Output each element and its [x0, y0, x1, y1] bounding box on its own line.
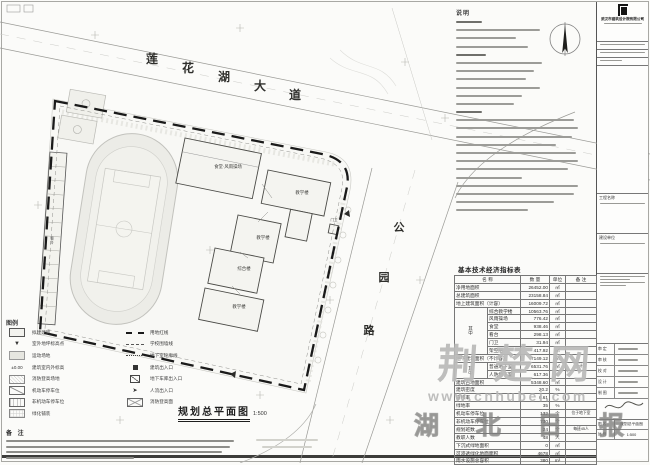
legend-left-column: 拟建建筑▼室外地坪标高点运动场地±0.00建筑室内外标高消防登高场地机动车停车位…: [6, 327, 64, 420]
garage-symbol: [130, 375, 140, 383]
table-name-cell: 雨水设施总容积: [455, 457, 521, 465]
note-line: [456, 185, 578, 187]
table-remark-cell: [566, 299, 597, 307]
bldg-legend-icon: [6, 328, 28, 337]
note-line: [456, 152, 576, 154]
legend-item: 建筑出入口: [124, 362, 182, 374]
note-line: [456, 168, 568, 170]
svg-text:花: 花: [182, 60, 194, 75]
note-line: [456, 103, 514, 105]
table-unit-cell: ㎡: [550, 299, 566, 307]
level-legend-icon: ±0.00: [6, 365, 28, 370]
table-remark-cell: [566, 315, 597, 323]
watermark-url: www.cnhubei.com: [428, 388, 588, 404]
table-header-cell: 数 量: [521, 276, 550, 284]
legend-item-label: 地下车库出入口: [150, 376, 182, 382]
table-name-cell: 可渗透绿化地面面积: [455, 449, 521, 457]
remark-line: [6, 440, 234, 442]
parking-legend-icon: [6, 386, 28, 395]
signature-value-line: [618, 359, 638, 361]
legend-item: 运动场地: [6, 350, 64, 362]
table-name-cell: 地上建筑面积（计容）: [455, 299, 521, 307]
field-symbol: [9, 351, 25, 360]
table-qty-cell: 4678: [521, 449, 550, 457]
legend-item: 消防登高场地: [6, 373, 64, 385]
faint-caption-line: [256, 439, 318, 441]
table-qty-cell: 776.42: [521, 315, 550, 323]
table-row: 可渗透绿化地面面积4678㎡: [455, 449, 597, 457]
drawing-sheet: { "sheet": { "plan_title": "规划总平面图", "pl…: [0, 0, 650, 463]
titleblock-row: [597, 42, 648, 50]
svg-text:路: 路: [364, 323, 376, 337]
table-remark-cell: [566, 283, 597, 291]
table-row: 总建筑面积23158.84㎡: [455, 291, 597, 299]
note-line: [456, 119, 574, 121]
legend-item-label: 人流出入口: [150, 388, 173, 394]
table-row: 下沉式绿地面积0㎡: [455, 441, 597, 449]
company-subtitle-line: [604, 23, 642, 25]
plan-title: 规划总平面图: [178, 403, 250, 422]
signature-value-line: [618, 348, 638, 350]
watermark-brand: 荆楚网: [436, 332, 608, 390]
legend-item-label: 绿化铺装: [32, 411, 50, 417]
flow-legend-icon: ➤: [124, 388, 146, 394]
text-line: [600, 279, 630, 281]
entry-symbol: [133, 365, 138, 370]
table-qty-cell: 380: [521, 457, 550, 465]
basement-legend-icon: [124, 355, 146, 356]
spot-symbol: ▼: [14, 341, 20, 347]
project-name-label: 工程名称: [597, 194, 648, 201]
text-line: [600, 44, 645, 46]
legend-item: 地下室轮廓线: [124, 350, 182, 362]
notes-text-lines: [456, 21, 588, 211]
paving-symbol: [9, 409, 25, 418]
signature-value-line: [618, 370, 638, 372]
table-unit-cell: ㎡: [550, 449, 566, 457]
remarks-text-lines: [6, 440, 256, 458]
titleblock-client-cell: 建设单位: [597, 234, 648, 274]
legend-item-label: 非机动车停车位: [32, 399, 64, 405]
redline-symbol: [126, 332, 144, 334]
field-legend-icon: [6, 351, 28, 360]
table-name-cell: 下沉式绿地面积: [455, 441, 521, 449]
svg-text:莲: 莲: [146, 51, 158, 66]
remark-line: [6, 457, 134, 459]
legend-item-label: 学校围墙线: [150, 341, 173, 347]
spot-legend-icon: ▼: [6, 341, 28, 347]
table-qty-cell: 16009.72: [521, 299, 550, 307]
text-line: [600, 243, 645, 245]
table-header-cell: 名 称: [455, 276, 521, 284]
label-teaching-mid: 教学楼: [256, 234, 270, 241]
legend-item-label: 建筑出入口: [150, 365, 173, 371]
svg-text:公: 公: [394, 221, 405, 234]
remarks-panel: 备 注: [6, 428, 256, 459]
legend-item: 拟建建筑: [6, 327, 64, 339]
flow-symbol: ➤: [132, 388, 137, 394]
fire-legend-icon: [124, 398, 146, 407]
titleblock: 武汉市建筑设计院有限公司 工程名称 建设单位 审 定审 核校 对设 计制 图 图…: [597, 2, 648, 459]
legend-item: 绿化铺装: [6, 408, 64, 420]
bike-symbol: [9, 398, 25, 407]
contour-lines: [330, 50, 396, 94]
table-qty-cell: 10563.76: [521, 307, 550, 315]
svg-text:大: 大: [254, 78, 266, 93]
legend-item: 用地红线: [124, 327, 182, 339]
table-unit-cell: ㎡: [550, 291, 566, 299]
table-remark-cell: [566, 291, 597, 299]
note-line: [456, 78, 526, 80]
legend-item-label: 拟建建筑: [32, 330, 50, 336]
table-name-cell: 综合教学楼: [488, 307, 521, 315]
note-line: [456, 21, 482, 23]
plan-title-block: 规划总平面图1:500: [178, 402, 267, 422]
hatch-symbol: [9, 375, 25, 384]
note-line: [456, 46, 528, 48]
legend-item: ➤人流出入口: [124, 385, 182, 397]
titleblock-logo-section: 武汉市建筑设计院有限公司: [597, 2, 648, 42]
note-line: [456, 54, 486, 56]
table-name-cell: 风雨操场: [488, 315, 521, 323]
table-unit-cell: ㎡: [550, 315, 566, 323]
remark-line: [6, 446, 230, 448]
text-line: [600, 282, 645, 284]
corner-marks: [7, 5, 33, 12]
note-line: [456, 87, 540, 89]
titleblock-project-cell: 工程名称: [597, 194, 648, 234]
table-name-cell: 总建筑面积: [455, 291, 521, 299]
table-unit-cell: m³: [550, 457, 566, 465]
entry-legend-icon: [124, 365, 146, 370]
text-line: [600, 52, 645, 54]
legend-item: ±0.00建筑室内外标高: [6, 362, 64, 374]
client-name-label: 建设单位: [597, 234, 648, 241]
level-symbol: ±0.00: [11, 365, 22, 370]
note-line: [456, 37, 516, 39]
table-header-cell: 单位: [550, 276, 566, 284]
legend-right-column: 用地红线学校围墙线地下室轮廓线建筑出入口地下车库出入口➤人流出入口消防登高面: [124, 327, 182, 408]
parking-symbol: [9, 386, 25, 395]
svg-text:道: 道: [289, 87, 301, 102]
table-row: 净用地面积26452.00㎡: [455, 283, 597, 291]
table-name-cell: 食堂: [488, 323, 521, 331]
table-header-cell: 备 注: [566, 276, 597, 284]
note-line: [456, 193, 574, 195]
notes-title: 说明: [456, 8, 588, 17]
table-row: 其中综合教学楼10563.76㎡: [455, 307, 597, 315]
titleblock-row: [597, 50, 648, 58]
table-unit-cell: ㎡: [550, 283, 566, 291]
legend-item: 地下车库出入口: [124, 373, 182, 385]
note-line: [456, 201, 554, 203]
legend-item: ▼室外地坪标高点: [6, 339, 64, 351]
legend-item-label: 地下室轮廓线: [150, 353, 178, 359]
road-name-lianhuahu-avenue: 莲 花 湖 大 道: [146, 51, 301, 102]
legend-item-label: 室外地坪标高点: [32, 341, 64, 347]
text-line: [600, 60, 622, 62]
text-line: [600, 203, 645, 205]
faint-caption-line: [262, 446, 312, 448]
plan-scale: 1:500: [253, 411, 267, 417]
company-name: 武汉市建筑设计院有限公司: [597, 16, 648, 22]
table-row: 雨水设施总容积380m³: [455, 457, 597, 465]
label-canteen-gym: 食堂·风雨操场: [214, 163, 242, 170]
table-unit-cell: ㎡: [550, 323, 566, 331]
table-remark-cell: [566, 307, 597, 315]
legend-item-label: 建筑室内外标高: [32, 365, 64, 371]
note-line: [456, 111, 482, 113]
table-qty-cell: 0: [521, 441, 550, 449]
text-line: [600, 276, 645, 278]
note-line: [456, 209, 528, 211]
legend-title: 图例: [6, 318, 256, 327]
legend-item: 非机动车停车位: [6, 397, 64, 409]
bldg-symbol: [9, 328, 25, 337]
legend-panel: 图例 拟建建筑▼室外地坪标高点运动场地±0.00建筑室内外标高消防登高场地机动车…: [6, 318, 256, 327]
titleblock-empty-cell: [597, 66, 648, 194]
svg-text:园: 园: [379, 271, 390, 284]
fire-symbol: [127, 398, 143, 407]
table-qty-cell: 23158.84: [521, 291, 550, 299]
road-name-gongyuan-road: 公 园 路: [364, 221, 405, 337]
svg-text:湖: 湖: [218, 69, 230, 84]
indicators-table-title: 基本技术经济指标表: [458, 264, 586, 274]
table-remark-cell: [566, 457, 597, 465]
signature-value-line: [618, 381, 638, 383]
table-header-row: 名 称数 量单位备 注: [455, 276, 597, 284]
table-remark-cell: [566, 323, 597, 331]
note-line: [456, 144, 556, 146]
hatch-legend-icon: [6, 375, 28, 384]
bike-legend-icon: [6, 398, 28, 407]
legend-item-label: 用地红线: [150, 330, 168, 336]
note-line: [456, 127, 578, 129]
legend-item-label: 机动车停车位: [32, 388, 60, 394]
table-unit-cell: ㎡: [550, 441, 566, 449]
titleblock-row: [597, 58, 648, 66]
table-qty-cell: 938.46: [521, 323, 550, 331]
table-remark-cell: [566, 441, 597, 449]
redline-legend-icon: [124, 332, 146, 334]
legend-item-label: 消防登高面: [150, 399, 173, 405]
garage-legend-icon: [124, 375, 146, 383]
note-line: [456, 177, 522, 179]
wall-symbol: [126, 344, 144, 345]
table-qty-cell: 26452.00: [521, 283, 550, 291]
note-line: [456, 62, 542, 64]
stands-label: 看台: [50, 235, 56, 245]
note-line: [456, 70, 534, 72]
legend-item-label: 运动场地: [32, 353, 50, 359]
legend-item: 机动车停车位: [6, 385, 64, 397]
watermark-site-name: 湖 北 日 报 网: [414, 406, 650, 442]
label-teaching-north: 教学楼: [295, 189, 309, 196]
note-line: [456, 29, 540, 31]
notes-panel: 说明: [456, 8, 588, 260]
legend-item-label: 消防登高场地: [32, 376, 60, 382]
wall-legend-icon: [124, 344, 146, 345]
label-teaching-south: 教学楼: [232, 303, 246, 310]
text-line: [600, 285, 626, 287]
legend-item: 学校围墙线: [124, 339, 182, 351]
table-row: 地上建筑面积（计容）16009.72㎡: [455, 299, 597, 307]
label-gatehouse: 门卫: [331, 217, 339, 222]
note-line: [456, 160, 578, 162]
legend-item: 消防登高面: [124, 397, 182, 409]
table-unit-cell: ㎡: [550, 307, 566, 315]
remark-line: [6, 451, 222, 453]
basement-symbol: [126, 355, 144, 356]
note-line: [456, 95, 522, 97]
note-line: [456, 136, 572, 138]
remarks-title: 备 注: [6, 428, 256, 437]
paving-legend-icon: [6, 409, 28, 418]
table-name-cell: 净用地面积: [455, 283, 521, 291]
label-complex: 综合楼: [237, 265, 251, 272]
company-logo-icon: [618, 4, 628, 16]
table-remark-cell: [566, 449, 597, 457]
